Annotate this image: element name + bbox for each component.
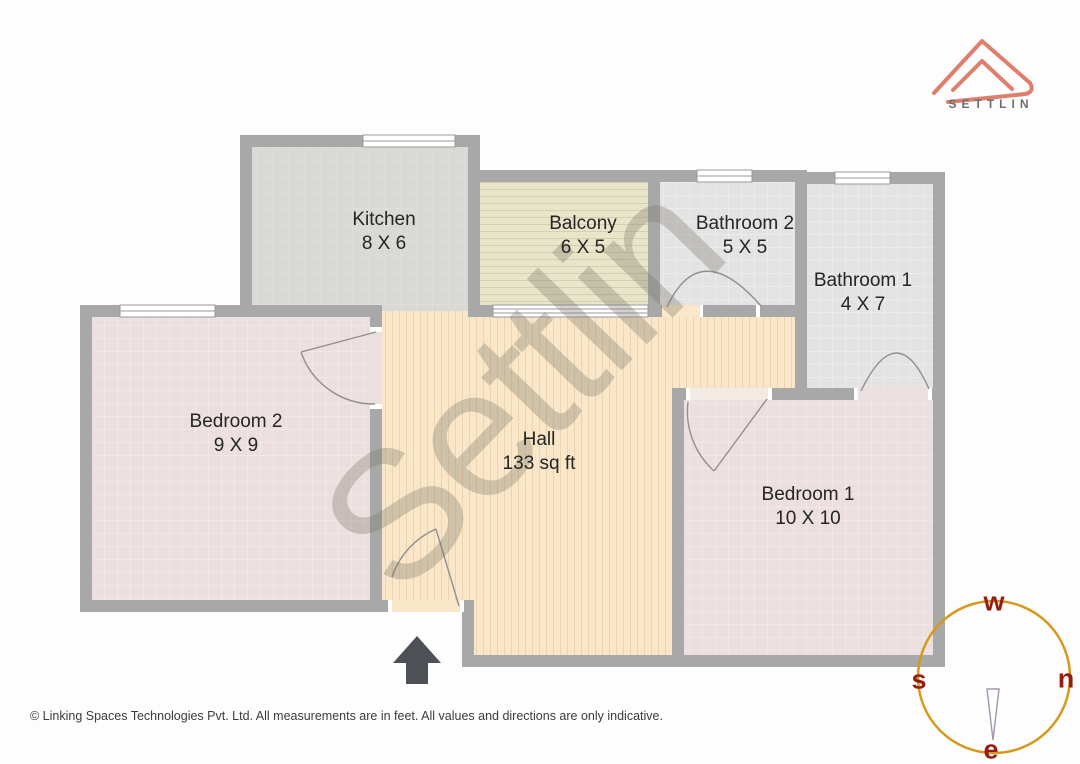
room-label-bathroom1: Bathroom 1 4 X 7 [814, 269, 912, 317]
room-name: Bedroom 1 [762, 483, 855, 507]
room-label-bathroom2: Bathroom 2 5 X 5 [696, 212, 794, 260]
kitchen-window [363, 135, 455, 147]
compass-label-south: s [911, 665, 926, 696]
room-dims: 5 X 5 [696, 236, 794, 260]
room-dims: 4 X 7 [814, 293, 912, 317]
compass-label-east: e [983, 735, 998, 764]
room-label-hall: Hall 133 sq ft [503, 428, 576, 476]
floor-plan-drawing [0, 0, 1080, 764]
bedroom2-window [120, 305, 215, 317]
room-name: Bedroom 2 [190, 410, 283, 434]
room-dims: 8 X 6 [352, 232, 415, 256]
bathroom1-window [835, 172, 890, 184]
entrance-arrow-icon [393, 636, 441, 684]
room-dims: 6 X 5 [549, 236, 617, 260]
room-name: Kitchen [352, 208, 415, 232]
balcony-sliding-window [493, 305, 648, 317]
room-label-bedroom1: Bedroom 1 10 X 10 [762, 483, 855, 531]
compass-label-west: w [983, 587, 1004, 618]
bathroom2-window [697, 170, 752, 182]
room-name: Balcony [549, 212, 617, 236]
room-dims: 9 X 9 [190, 434, 283, 458]
room-dims: 10 X 10 [762, 507, 855, 531]
compass-label-north: n [1058, 664, 1075, 695]
brand-name: SETTLIN [949, 97, 1034, 111]
room-name: Bathroom 2 [696, 212, 794, 236]
room-name: Bathroom 1 [814, 269, 912, 293]
room-label-kitchen: Kitchen 8 X 6 [352, 208, 415, 256]
room-dims: 133 sq ft [503, 452, 576, 476]
compass-needle-icon [987, 689, 999, 740]
bedroom2-floor [92, 317, 370, 600]
floor-plan-page: Settlin Kitchen 8 X 6 Balcony 6 X 5 Bath… [0, 0, 1080, 764]
room-label-balcony: Balcony 6 X 5 [549, 212, 617, 260]
room-label-bedroom2: Bedroom 2 9 X 9 [190, 410, 283, 458]
room-name: Hall [503, 428, 576, 452]
compass-icon [918, 601, 1070, 753]
footer-disclaimer: © Linking Spaces Technologies Pvt. Ltd. … [30, 709, 663, 723]
